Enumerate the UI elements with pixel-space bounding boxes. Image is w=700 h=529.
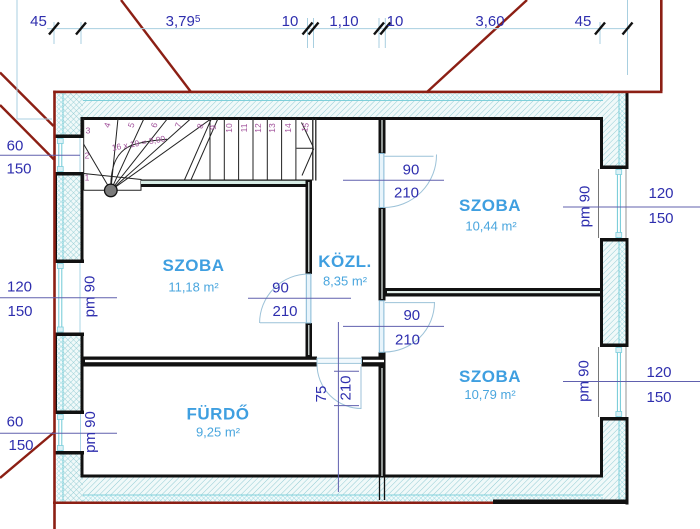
svg-text:pm 90: pm 90 xyxy=(82,411,99,453)
svg-text:9,25 m²: 9,25 m² xyxy=(196,425,241,440)
svg-text:10: 10 xyxy=(387,13,404,30)
svg-text:8,35 m²: 8,35 m² xyxy=(323,274,368,289)
svg-text:11,18 m²: 11,18 m² xyxy=(168,280,219,295)
svg-text:14: 14 xyxy=(283,123,293,133)
svg-text:10: 10 xyxy=(282,13,299,30)
svg-text:120: 120 xyxy=(646,364,671,381)
svg-text:10,79 m²: 10,79 m² xyxy=(464,387,516,402)
svg-text:150: 150 xyxy=(8,437,33,454)
svg-text:KÖZL.: KÖZL. xyxy=(318,252,372,271)
svg-text:SZOBA: SZOBA xyxy=(459,367,521,386)
svg-text:120: 120 xyxy=(648,185,673,202)
svg-text:150: 150 xyxy=(648,210,673,227)
svg-text:1: 1 xyxy=(85,173,90,183)
svg-text:FÜRDŐ: FÜRDŐ xyxy=(187,405,250,424)
svg-text:75: 75 xyxy=(313,386,330,403)
svg-text:150: 150 xyxy=(7,303,32,320)
svg-text:2: 2 xyxy=(85,151,90,161)
svg-text:150: 150 xyxy=(6,161,31,178)
svg-text:45: 45 xyxy=(30,13,47,30)
svg-text:10: 10 xyxy=(224,123,234,133)
svg-text:pm 90: pm 90 xyxy=(577,186,594,228)
svg-text:SZOBA: SZOBA xyxy=(459,196,521,215)
svg-text:45: 45 xyxy=(575,13,592,30)
svg-text:210: 210 xyxy=(394,184,419,201)
svg-text:210: 210 xyxy=(272,303,297,320)
svg-text:12: 12 xyxy=(253,123,263,133)
svg-text:pm 90: pm 90 xyxy=(82,276,99,318)
svg-text:pm 90: pm 90 xyxy=(576,360,593,402)
svg-text:90: 90 xyxy=(403,307,420,324)
svg-text:150: 150 xyxy=(646,389,671,406)
svg-text:13: 13 xyxy=(267,123,277,133)
svg-text:1,10: 1,10 xyxy=(329,13,358,30)
svg-text:SZOBA: SZOBA xyxy=(163,256,225,275)
svg-text:60: 60 xyxy=(7,414,24,431)
svg-text:120: 120 xyxy=(7,279,32,296)
svg-text:3,60: 3,60 xyxy=(475,13,504,30)
svg-text:210: 210 xyxy=(338,375,355,400)
svg-text:90: 90 xyxy=(403,161,420,178)
svg-text:10,44 m²: 10,44 m² xyxy=(465,219,517,234)
svg-text:90: 90 xyxy=(272,279,289,296)
svg-text:3: 3 xyxy=(86,126,91,136)
svg-text:210: 210 xyxy=(395,332,420,349)
svg-text:60: 60 xyxy=(7,138,24,155)
svg-text:11: 11 xyxy=(239,123,249,132)
svg-text:9: 9 xyxy=(208,125,218,130)
